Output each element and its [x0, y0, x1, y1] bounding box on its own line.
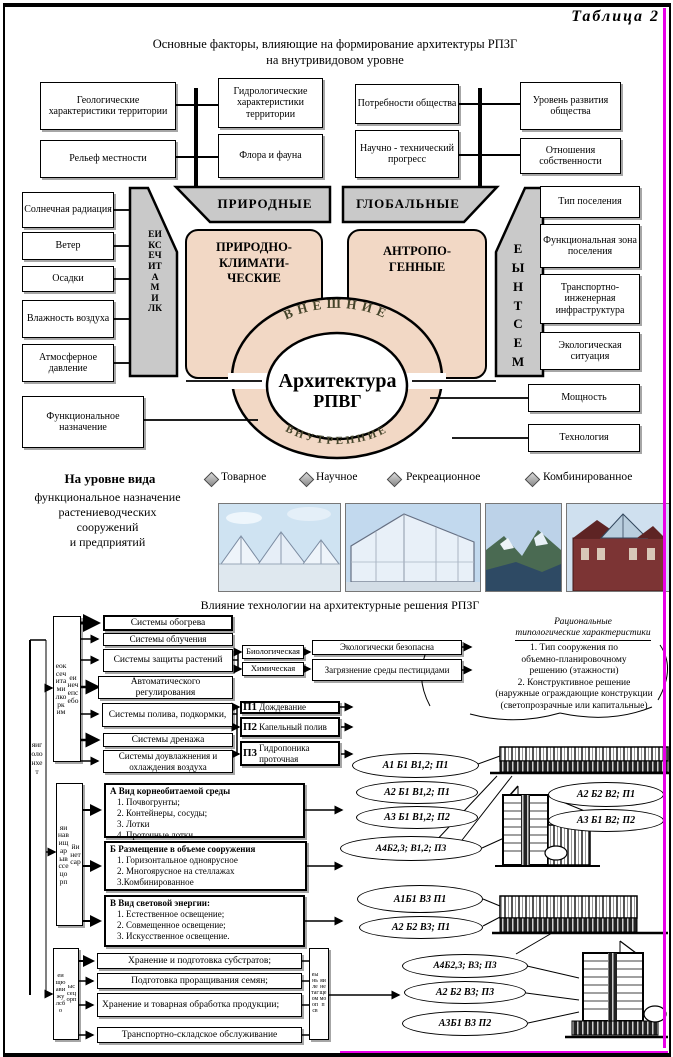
system-box: Системы облучения — [103, 633, 233, 646]
species-line: и предприятий — [0, 535, 215, 550]
group-label-word: йинетсар — [70, 843, 81, 866]
trapezoid-label-natural: ПРИРОДНЫЕ — [205, 196, 325, 212]
external-factor-box: Солнечная радиация — [22, 192, 114, 228]
external-factor-box: Функциональное назначение — [22, 396, 144, 448]
block-light-energy: В Вид световой энергии: 1. Естественное … — [104, 895, 305, 947]
local-factor-box: Мощность — [528, 384, 640, 412]
factor-box: Флора и фауна — [218, 134, 323, 178]
irrigation-box-p3: П3Гидропоника проточная — [240, 741, 340, 766]
legend-item-commercial: Товарное — [221, 471, 266, 483]
factor-box: Отношения собственности — [520, 138, 621, 174]
external-factor-box: Ветер — [22, 232, 114, 260]
group-label-word: еинечепсебо — [68, 674, 79, 705]
landscape-photo-image — [486, 504, 561, 591]
code-ellipse: А3 Б1 В1,2; П2 — [356, 806, 478, 829]
system-box: Системы обогрева — [103, 615, 233, 631]
greenhouse-photo-image — [346, 504, 480, 591]
local-factor-box: Транспортно-инженерная инфраструктура — [540, 274, 640, 324]
code-ellipse: А2 Б2 В3; П3 — [404, 981, 526, 1004]
irrigation-box-p2: П2Капельный полив — [240, 717, 340, 737]
legend-item-recreational: Рекреационное — [406, 471, 480, 483]
code-ellipse: А4Б2,3; В3; П3 — [402, 954, 528, 978]
trapezoid-label-global: ГЛОБАЛЬНЫЕ — [348, 196, 468, 212]
system-box: Системы полива, подкормки, — [102, 703, 233, 727]
irrigation-code: П1 — [243, 701, 257, 713]
code-ellipse: А3Б1 В3 П2 — [402, 1011, 528, 1036]
photo-greenhouse-modern — [345, 503, 481, 592]
tech-axis-label: яиголонхет — [31, 740, 43, 776]
greenhouse-photo-image — [219, 504, 340, 591]
group-label-word: яинавищарыв ссецорп — [58, 824, 69, 886]
scanned-diagram-page: ВНЕШНИЕ ВНУТРЕННИЕ — [0, 0, 673, 1057]
rational-heading: Рациональные типологические характеристи… — [498, 617, 668, 641]
code-ellipse: А1Б1 В3 П1 — [357, 885, 483, 913]
group-label-word: ыссецорп — [67, 984, 77, 1005]
protection-type-box: Химическая — [242, 662, 304, 676]
species-line: растениеводческих — [0, 505, 215, 520]
external-factor-box: Атмосферное давление — [22, 344, 114, 382]
service-box: Хранение и подготовка субстратов; — [97, 953, 302, 969]
protection-type-box: Биологическая — [242, 645, 304, 659]
service-side-box: еыньлетагомопсв яинещемоп — [309, 948, 329, 1040]
process-group-growing: яинавищарыв ссецорп йинетсар — [56, 783, 83, 926]
irrigation-code: П2 — [243, 721, 257, 733]
service-box: Хранение и товарная обработка продукции; — [97, 993, 302, 1017]
building-photo-image — [567, 504, 670, 591]
irrigation-box-p1: П1Дождевание — [240, 701, 340, 714]
factor-box: Геологические характеристики территории — [40, 82, 176, 130]
system-box: Системы дренажа — [103, 733, 233, 747]
central-shapes: ВНЕШНИЕ ВНУТРЕННИЕ — [130, 187, 543, 458]
protection-outcome-box: Экологически безопасна — [312, 640, 462, 655]
external-factor-box: Осадки — [22, 266, 114, 292]
greenhouse-strip-building-1 — [490, 747, 670, 773]
greenhouse-strip-building-2 — [492, 896, 668, 933]
service-side-word: еыньлетагомопсв — [311, 973, 319, 1015]
photo-combined-building — [566, 503, 671, 592]
code-ellipse: А2 Б2 В3; П1 — [359, 916, 483, 939]
external-factor-box: Влажность воздуха — [22, 300, 114, 338]
service-side-word: яинещемоп — [319, 979, 327, 1009]
species-heading: На уровне вида — [10, 471, 210, 487]
legend-item-combined: Комбинированное — [543, 471, 632, 483]
page-title-line2: на внутривидовом уровне — [40, 53, 630, 68]
process-group-microclimate: еоксечитамилкорким еинечепсебо — [53, 616, 81, 762]
factor-box: Рельеф местности — [40, 140, 176, 178]
protection-outcome-box: Загрязнение среды пестицидами — [312, 659, 462, 681]
tech-section-title: Влияние технологии на архитектурные реше… — [100, 598, 580, 613]
irrigation-code: П3 — [243, 747, 257, 759]
block-root-medium: А Вид корнеобитаемой среды 1. Почвогрунт… — [104, 783, 305, 838]
photo-mountain-landscape — [485, 503, 562, 592]
rational-text: 1. Тип сооружения по объемно-планировочн… — [478, 643, 670, 712]
system-box: Системы защиты растений — [103, 649, 233, 672]
code-ellipse: А4Б2,3; В1,2; П3 — [340, 836, 482, 861]
pink-label-anthropogenic: АНТРОПО- ГЕННЫЕ — [352, 244, 482, 275]
table-label: Таблица 2 — [520, 8, 660, 26]
species-line: сооружений — [0, 520, 215, 535]
factor-box: Уровень развития общества — [520, 82, 621, 130]
service-box: Подготовка проращивания семян; — [97, 973, 302, 989]
pink-label-natural-climatic: ПРИРОДНО- КЛИМАТИ- ЧЕСКИЕ — [192, 240, 316, 287]
magenta-right-border — [663, 8, 666, 1048]
magenta-bottom-border — [340, 1051, 668, 1053]
factor-box: Гидрологические характеристики территори… — [218, 78, 323, 128]
photo-greenhouse-commercial — [218, 503, 341, 592]
factor-box: Научно - технический прогресс — [355, 130, 459, 178]
local-factor-box: Тип поселения — [540, 186, 640, 218]
species-line: функциональное назначение — [0, 490, 215, 505]
band-label-local: ЕЫНТСЕМ — [510, 240, 526, 372]
process-bracket-lines — [30, 640, 55, 995]
local-factor-box: Экологическая ситуация — [540, 332, 640, 370]
architecture-core-label: Архитектура РПВГ — [265, 370, 410, 412]
code-ellipse: А2 Б1 В1,2; П1 — [356, 781, 478, 804]
block-placement: Б Размещение в объеме сооружения 1. Гори… — [104, 841, 307, 891]
system-box: Автоматического регулирования — [98, 676, 233, 699]
code-ellipse: А3 Б1 В2; П2 — [548, 809, 664, 832]
system-box: Системы доувлажнения и охлаждения воздух… — [103, 750, 233, 773]
service-box: Транспортно-складское обслуживание — [97, 1027, 302, 1043]
process-group-service: еищюавижулсбо ыссецорп — [53, 948, 79, 1040]
local-factor-box: Функциональная зона поселения — [540, 224, 640, 268]
code-ellipse: А1 Б1 В1,2; П1 — [352, 753, 479, 778]
legend-item-scientific: Научное — [316, 471, 358, 483]
local-factor-box: Технология — [528, 424, 640, 452]
tower-building — [565, 941, 668, 1037]
band-label-climatic: ЕИКСЕЧИТАМИЛК — [148, 230, 162, 315]
group-label-word: еоксечитамилкорким — [56, 662, 67, 716]
code-ellipse: А2 Б2 В2; П1 — [548, 782, 664, 807]
group-label-word: еищюавижулсбо — [56, 973, 66, 1015]
factor-box: Потребности общества — [355, 84, 459, 124]
page-title-line1: Основные факторы, влияющие на формирован… — [40, 37, 630, 52]
